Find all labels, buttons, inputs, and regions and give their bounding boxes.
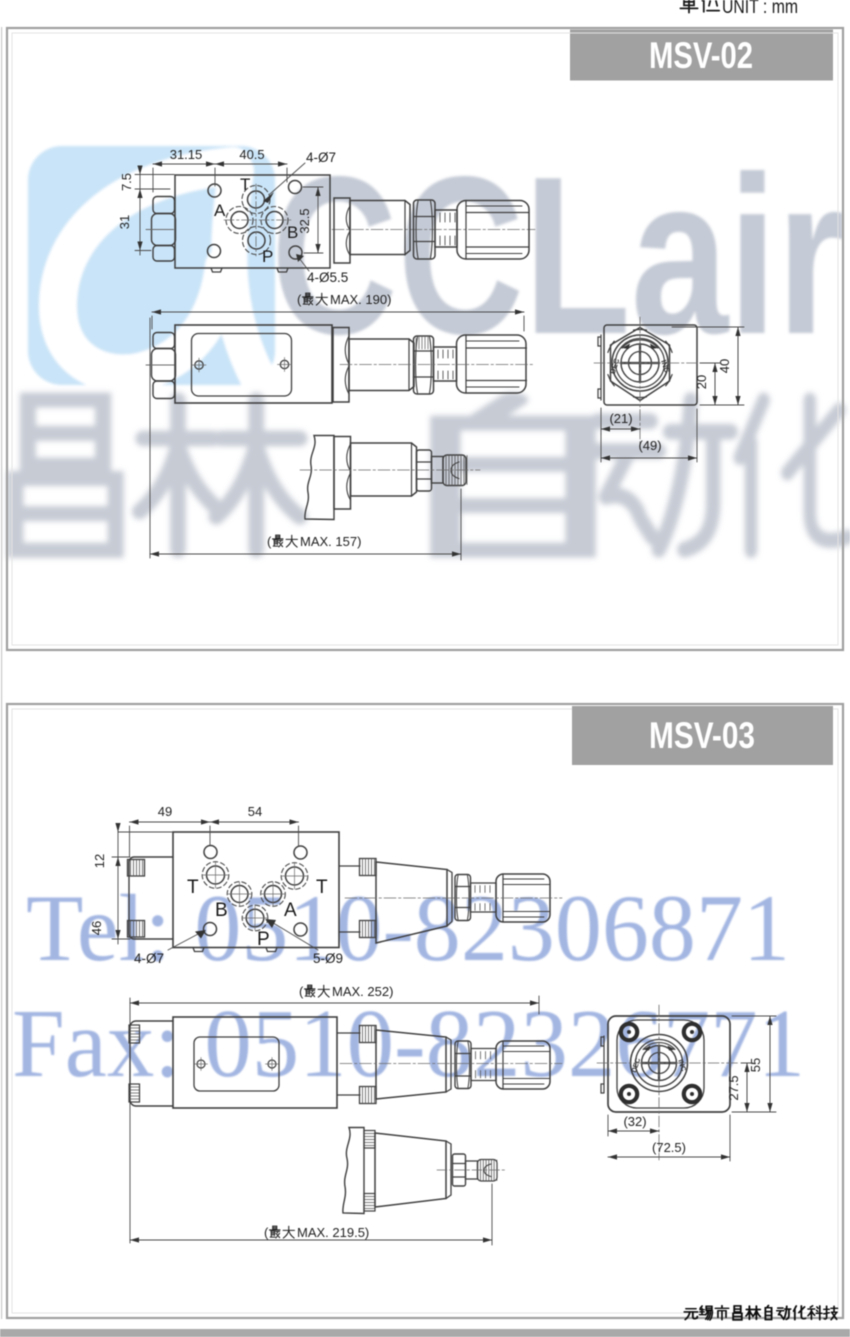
svg-text:MAX. 219.5): MAX. 219.5) bbox=[297, 1225, 369, 1240]
svg-text:31.15: 31.15 bbox=[170, 147, 203, 162]
svg-text:55: 55 bbox=[748, 1058, 763, 1072]
svg-text:MAX. 157): MAX. 157) bbox=[300, 534, 361, 549]
svg-text:B: B bbox=[215, 900, 228, 921]
svg-text:MSV-03: MSV-03 bbox=[649, 715, 755, 756]
svg-text:A: A bbox=[214, 201, 226, 220]
svg-text:32.5: 32.5 bbox=[297, 208, 312, 233]
svg-text:40: 40 bbox=[717, 359, 732, 373]
svg-text:4-Ø7: 4-Ø7 bbox=[306, 150, 336, 165]
svg-text:(49): (49) bbox=[638, 438, 661, 453]
svg-text:T: T bbox=[240, 175, 250, 194]
svg-text:(: ( bbox=[267, 534, 272, 549]
svg-text:7.5: 7.5 bbox=[119, 173, 134, 191]
svg-text:T: T bbox=[187, 877, 199, 898]
svg-text:4-Ø5.5: 4-Ø5.5 bbox=[307, 270, 348, 285]
svg-text:49: 49 bbox=[158, 804, 172, 819]
svg-text:(: ( bbox=[297, 292, 302, 307]
svg-text:MAX. 252): MAX. 252) bbox=[332, 984, 393, 999]
svg-text:40.5: 40.5 bbox=[239, 147, 264, 162]
svg-text:(21): (21) bbox=[609, 411, 632, 426]
svg-text:20: 20 bbox=[694, 375, 709, 389]
svg-text:46: 46 bbox=[89, 921, 104, 935]
svg-text:(: ( bbox=[299, 984, 304, 999]
svg-text:54: 54 bbox=[248, 804, 262, 819]
svg-text:(32): (32) bbox=[623, 1114, 646, 1129]
svg-text:4-Ø7: 4-Ø7 bbox=[134, 951, 164, 966]
svg-text:MSV-02: MSV-02 bbox=[649, 35, 753, 76]
svg-text:12: 12 bbox=[92, 854, 107, 868]
svg-text:P: P bbox=[257, 929, 270, 950]
svg-text:UNIT : mm: UNIT : mm bbox=[722, 0, 798, 18]
svg-text:5-Ø9: 5-Ø9 bbox=[313, 951, 343, 966]
svg-text:A: A bbox=[284, 900, 297, 921]
svg-text:(: ( bbox=[264, 1225, 269, 1240]
svg-text:MAX. 190): MAX. 190) bbox=[330, 292, 391, 307]
svg-text:27.5: 27.5 bbox=[726, 1075, 741, 1100]
svg-text:31: 31 bbox=[117, 215, 132, 229]
svg-text:T: T bbox=[316, 877, 328, 898]
svg-text:(72.5): (72.5) bbox=[652, 1140, 686, 1155]
svg-text:P: P bbox=[262, 247, 273, 266]
